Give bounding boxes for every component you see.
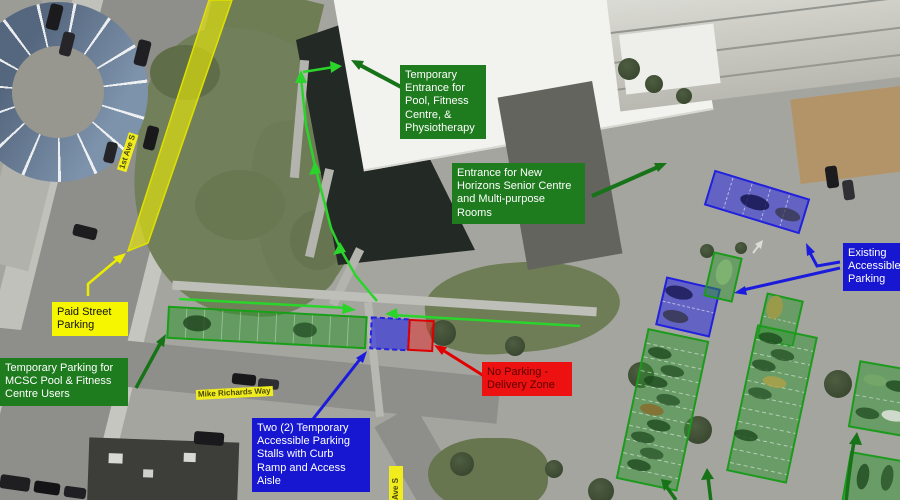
- label-temporary-entrance: Temporary Entrance for Pool, Fitness Cen…: [400, 65, 486, 139]
- label-temporary-parking: Temporary Parking for MCSC Pool & Fitnes…: [0, 358, 128, 406]
- leader-temporary-parking: [136, 334, 166, 388]
- general-parking-zone-b: [726, 325, 816, 482]
- no-parking-delivery-zone: [408, 320, 434, 351]
- leader-temporary-entrance: [351, 60, 403, 88]
- label-temp-accessible-stalls: Two (2) Temporary Accessible Parking Sta…: [252, 418, 370, 492]
- leader-lot-b: [701, 468, 714, 500]
- leader-existing-accessible-mid: [734, 268, 840, 295]
- leader-no-parking: [434, 345, 484, 376]
- temporary-parking-zone: [167, 307, 366, 348]
- label-existing-accessible-parking: Existing Accessible Parking: [843, 243, 900, 291]
- existing-accessible-zone-north: [705, 171, 809, 233]
- label-new-horizons-entrance: Entrance for New Horizons Senior Centre …: [452, 163, 585, 224]
- aerial-site-map: Temporary Entrance for Pool, Fitness Cen…: [0, 0, 900, 500]
- temp-accessible-stalls-zone: [370, 317, 410, 350]
- label-paid-street-parking: Paid Street Parking: [52, 302, 128, 336]
- leader-temp-accessible-stalls: [313, 351, 367, 419]
- paid-street-parking-zone: [128, 0, 232, 251]
- leader-paid-street: [88, 253, 126, 296]
- route-arrowheads: [295, 61, 398, 319]
- label-no-parking-delivery: No Parking - Delivery Zone: [482, 362, 572, 396]
- general-parking-zone-east: [849, 361, 900, 437]
- street-tag-ave-s: Ave S: [389, 466, 403, 500]
- leader-existing-accessible-north: [806, 243, 840, 266]
- leader-new-horizons: [592, 163, 667, 196]
- pavement-arrow-marking: [753, 240, 763, 253]
- general-parking-zone-a: [617, 329, 708, 490]
- parking-stall-green: [704, 252, 741, 301]
